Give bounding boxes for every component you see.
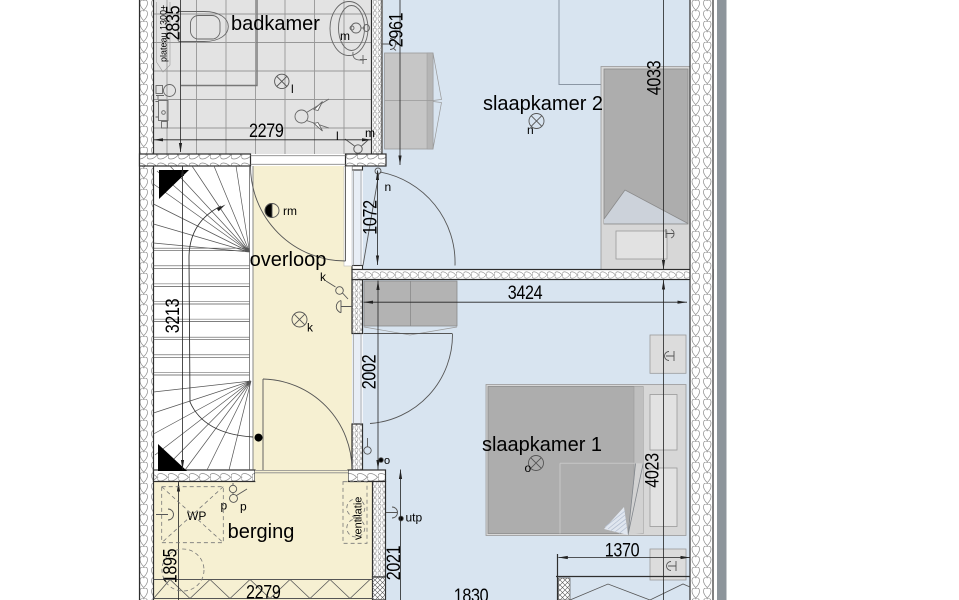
svg-text:k: k <box>320 270 327 284</box>
svg-text:2961: 2961 <box>387 13 408 48</box>
svg-text:rm: rm <box>283 204 297 218</box>
svg-text:berging: berging <box>228 521 295 543</box>
svg-text:2279: 2279 <box>246 583 281 600</box>
svg-text:badkamer: badkamer <box>231 13 320 35</box>
svg-text:n: n <box>527 123 534 137</box>
svg-text:m: m <box>340 29 350 43</box>
svg-text:1370: 1370 <box>605 541 640 562</box>
svg-text:l: l <box>291 82 294 96</box>
svg-text:2021: 2021 <box>384 546 405 581</box>
svg-text:3213: 3213 <box>163 299 184 334</box>
svg-text:overloop: overloop <box>250 249 327 271</box>
svg-text:2002: 2002 <box>360 355 381 390</box>
svg-text:slaapkamer 1: slaapkamer 1 <box>482 434 602 456</box>
svg-text:m: m <box>365 126 375 140</box>
svg-text:utp: utp <box>406 511 423 525</box>
svg-text:3424: 3424 <box>508 283 543 304</box>
svg-text:p: p <box>221 499 228 513</box>
svg-text:o: o <box>384 455 390 467</box>
svg-text:4023: 4023 <box>643 453 664 488</box>
svg-text:l: l <box>336 129 339 143</box>
svg-text:k: k <box>307 321 314 335</box>
svg-text:2279: 2279 <box>249 121 284 142</box>
svg-text:4033: 4033 <box>645 61 666 96</box>
svg-text:1830: 1830 <box>454 586 489 600</box>
svg-text:1072: 1072 <box>361 200 382 235</box>
svg-text:n: n <box>385 180 392 194</box>
svg-text:plateau 1300+: plateau 1300+ <box>159 5 169 62</box>
svg-text:slaapkamer 2: slaapkamer 2 <box>483 93 603 115</box>
svg-text:p: p <box>240 500 247 514</box>
svg-text:ventilatie: ventilatie <box>353 497 365 540</box>
svg-text:o: o <box>525 461 532 475</box>
